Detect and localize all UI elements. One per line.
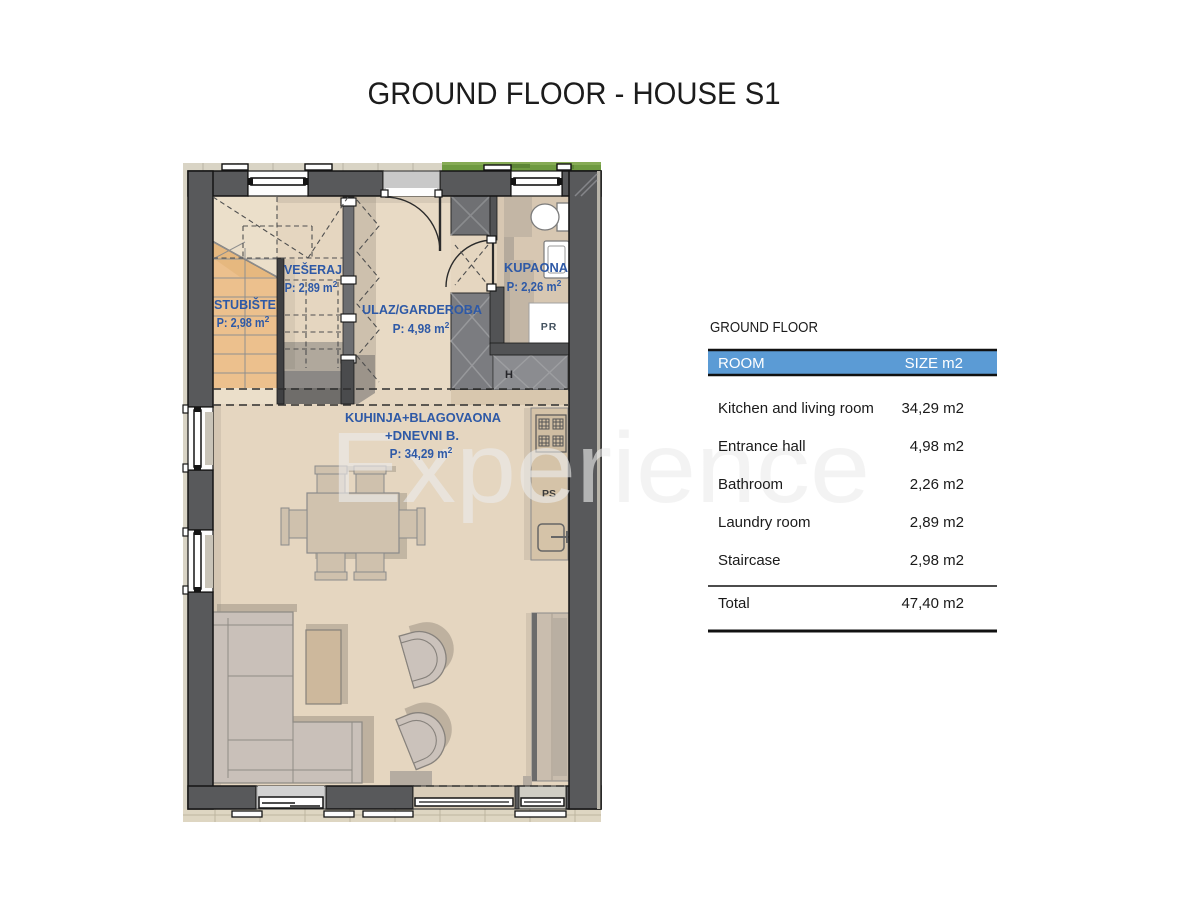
svg-text:GROUND FLOOR: GROUND FLOOR (710, 320, 818, 336)
svg-text:Kitchen and living room: Kitchen and living room (718, 400, 874, 417)
svg-text:2,26 m2: 2,26 m2 (910, 476, 964, 493)
svg-text:KUPAONA: KUPAONA (504, 260, 569, 275)
svg-text:Entrance hall: Entrance hall (718, 438, 806, 455)
svg-text:P: 2,98 m2: P: 2,98 m2 (217, 314, 270, 330)
svg-text:2,89 m2: 2,89 m2 (910, 514, 964, 531)
svg-text:VEŠERAJ: VEŠERAJ (284, 262, 342, 277)
svg-text:47,40 m2: 47,40 m2 (901, 595, 964, 612)
svg-text:34,29 m2: 34,29 m2 (901, 400, 964, 417)
svg-text:P: 34,29 m2: P: 34,29 m2 (390, 445, 453, 461)
svg-text:2,98 m2: 2,98 m2 (910, 552, 964, 569)
svg-text:ULAZ/GARDEROBA: ULAZ/GARDEROBA (362, 302, 483, 317)
svg-text:+DNEVNI B.: +DNEVNI B. (385, 428, 459, 443)
svg-text:4,98 m2: 4,98 m2 (910, 438, 964, 455)
svg-text:STUBIŠTE: STUBIŠTE (214, 297, 276, 312)
svg-text:Laundry room: Laundry room (718, 514, 811, 531)
svg-text:PR: PR (541, 321, 558, 333)
svg-text:SIZE m2: SIZE m2 (905, 355, 963, 372)
svg-text:GROUND FLOOR - HOUSE S1: GROUND FLOOR - HOUSE S1 (368, 75, 781, 111)
svg-text:P: 2,26 m2: P: 2,26 m2 (507, 278, 562, 294)
svg-text:P: 2,89 m2: P: 2,89 m2 (285, 279, 338, 295)
svg-text:P: 4,98 m2: P: 4,98 m2 (393, 320, 450, 336)
svg-text:H: H (505, 369, 513, 381)
svg-text:KUHINJA+BLAGOVAONA: KUHINJA+BLAGOVAONA (345, 410, 502, 425)
svg-text:Staircase: Staircase (718, 552, 781, 569)
svg-text:ROOM: ROOM (718, 355, 765, 372)
svg-text:Total: Total (718, 595, 750, 612)
svg-text:Bathroom: Bathroom (718, 476, 783, 493)
